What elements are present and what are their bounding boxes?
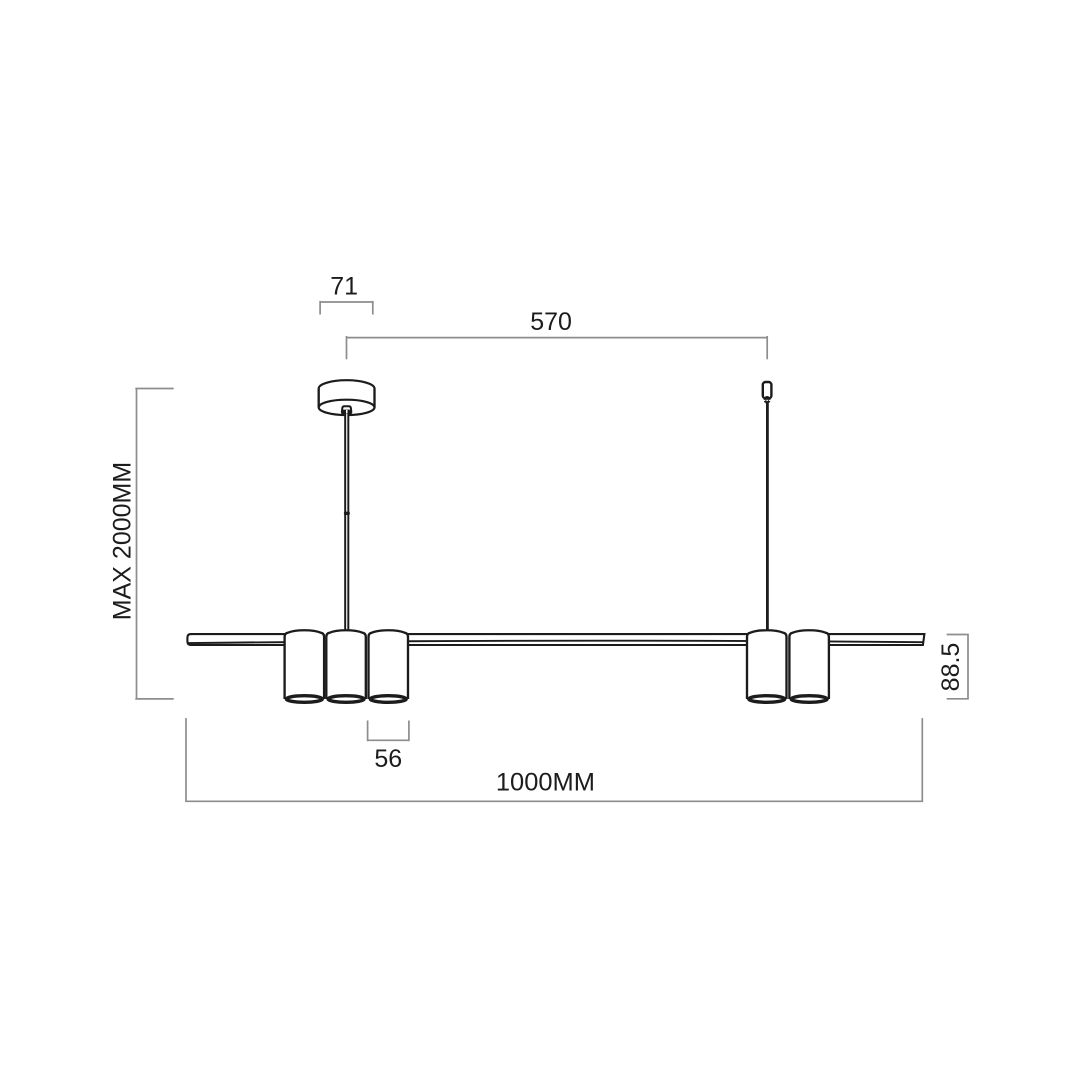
svg-text:88.5: 88.5 xyxy=(937,643,965,692)
svg-text:MAX 2000MM: MAX 2000MM xyxy=(109,462,137,620)
svg-text:1000MM: 1000MM xyxy=(496,769,595,797)
svg-text:56: 56 xyxy=(374,745,402,773)
svg-text:71: 71 xyxy=(330,273,358,301)
svg-text:570: 570 xyxy=(530,308,572,336)
